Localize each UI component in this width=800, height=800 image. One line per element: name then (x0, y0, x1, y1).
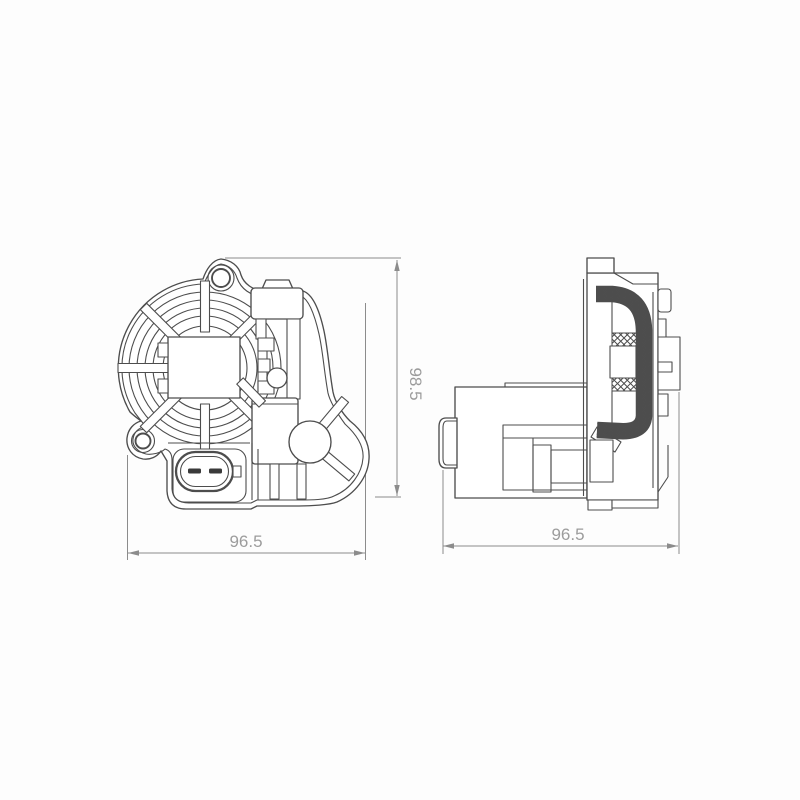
side-view (439, 258, 680, 510)
top-foot (587, 258, 614, 273)
cam-circle (289, 421, 331, 463)
technical-drawing-page: 96.5 98.5 96.5 (0, 0, 800, 800)
seal-hub-window (610, 346, 636, 378)
side-clips (658, 289, 680, 492)
gear-cover-plate (584, 258, 681, 510)
drawing-canvas: 96.5 98.5 96.5 (0, 0, 800, 800)
hub-shaft (590, 440, 613, 482)
front-view (118, 259, 369, 509)
center-bracket (158, 337, 287, 398)
motor-end-cap (439, 418, 457, 468)
dimension-side-width: 96.5 (443, 525, 678, 549)
bottom-feet (588, 500, 658, 510)
dimension-front-height: 98.5 (394, 260, 425, 496)
connector-key-tab (233, 466, 241, 477)
front-width-value: 96.5 (229, 532, 262, 551)
front-height-value: 98.5 (406, 367, 425, 400)
connector-shroud-outer (176, 452, 233, 491)
pivot-circle (267, 368, 287, 388)
motor-body (439, 383, 587, 498)
side-width-value: 96.5 (551, 525, 584, 544)
dimension-front-width: 96.5 (128, 532, 365, 556)
